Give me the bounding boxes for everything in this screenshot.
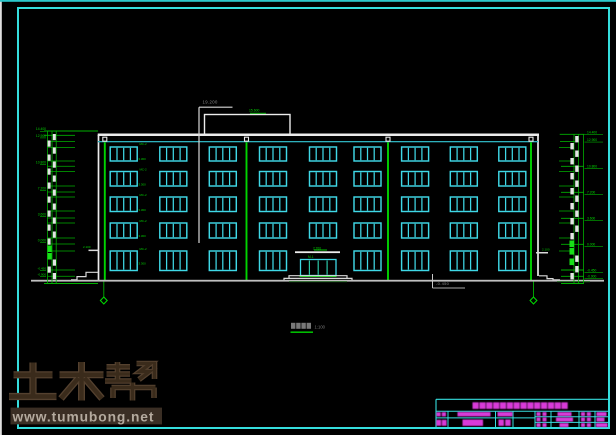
- svg-text:3.300: 3.300: [139, 157, 147, 161]
- svg-text:MC-2: MC-2: [140, 168, 147, 172]
- svg-text:3.300: 3.300: [139, 208, 147, 212]
- svg-text:www.tumubong.net: www.tumubong.net: [12, 410, 155, 425]
- svg-text:-0.900: -0.900: [37, 273, 46, 277]
- svg-text:0.000: 0.000: [587, 243, 595, 247]
- svg-text:-0.450: -0.450: [436, 281, 450, 286]
- svg-text:19.200: 19.200: [203, 99, 218, 104]
- svg-text:3.300: 3.300: [139, 183, 147, 187]
- svg-text:10.800: 10.800: [587, 165, 597, 169]
- svg-text:3.300: 3.300: [139, 234, 147, 238]
- svg-text:-0.450: -0.450: [37, 267, 46, 271]
- svg-text:14.400: 14.400: [36, 127, 46, 131]
- svg-text:MC-2: MC-2: [140, 142, 147, 146]
- svg-text:MC-2: MC-2: [140, 193, 147, 197]
- svg-text:3.600: 3.600: [38, 213, 46, 217]
- svg-text:MC-2: MC-2: [140, 219, 147, 223]
- svg-text:15.600: 15.600: [249, 109, 259, 113]
- svg-text:0.000: 0.000: [38, 239, 46, 243]
- svg-text:14.400: 14.400: [587, 130, 597, 134]
- svg-text:12.900: 12.900: [36, 134, 46, 138]
- svg-text:12.900: 12.900: [587, 138, 597, 142]
- svg-text:3.300: 3.300: [139, 262, 147, 266]
- svg-text:M-1: M-1: [308, 255, 314, 259]
- svg-text:10.800: 10.800: [36, 161, 46, 165]
- svg-text:-0.450: -0.450: [587, 269, 597, 273]
- svg-text:2.100: 2.100: [542, 247, 550, 251]
- svg-text:-0.900: -0.900: [587, 275, 597, 279]
- svg-text:1:100: 1:100: [315, 325, 326, 330]
- svg-text:3.600: 3.600: [587, 217, 595, 221]
- svg-text:2.100: 2.100: [83, 245, 91, 249]
- svg-text:7.200: 7.200: [38, 187, 46, 191]
- svg-text:7.200: 7.200: [587, 191, 595, 195]
- svg-text:MC-2: MC-2: [140, 247, 147, 251]
